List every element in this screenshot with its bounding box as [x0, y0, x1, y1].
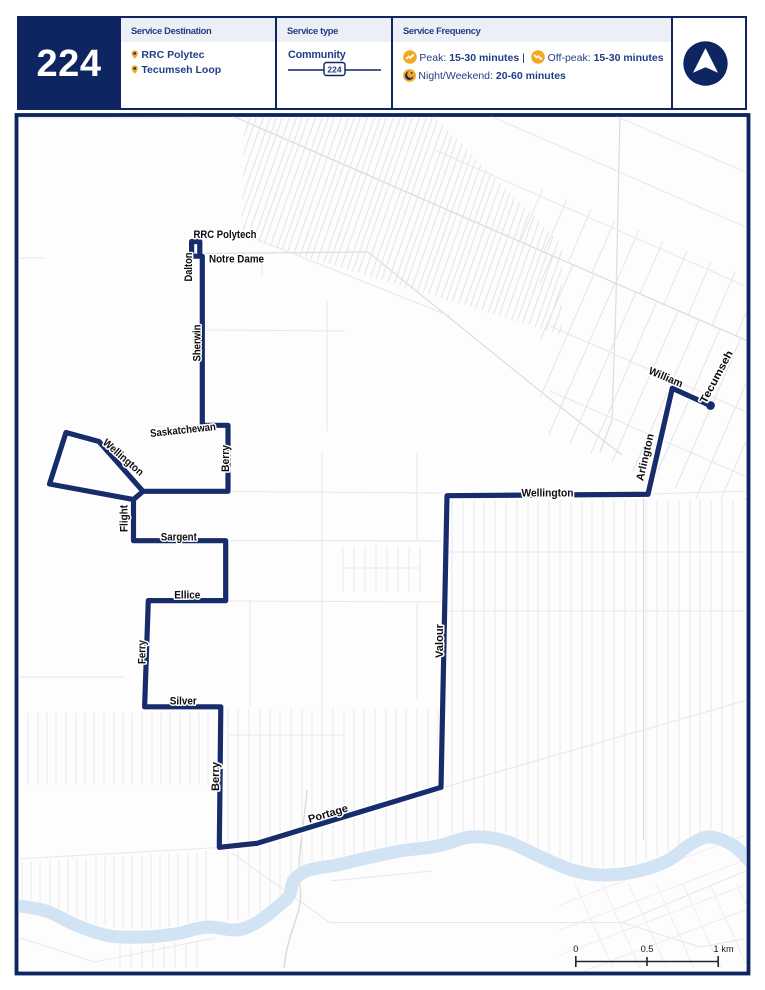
- svg-text:km: km: [721, 944, 734, 954]
- svg-text:Wellington: Wellington: [522, 488, 574, 500]
- svg-text:Berry: Berry: [220, 445, 232, 472]
- svg-text:Sherwin: Sherwin: [192, 325, 204, 362]
- svg-text:Dalton: Dalton: [183, 253, 195, 282]
- svg-text:Notre Dame: Notre Dame: [209, 253, 264, 265]
- svg-text:Ferry: Ferry: [136, 640, 148, 664]
- svg-text:Berry: Berry: [210, 762, 222, 791]
- svg-text:Ellice: Ellice: [174, 590, 200, 602]
- svg-text:Silver: Silver: [170, 696, 198, 708]
- svg-text:1: 1: [713, 944, 718, 954]
- svg-text:Valour: Valour: [434, 623, 446, 658]
- svg-text:RRC Polytech: RRC Polytech: [194, 229, 257, 241]
- svg-text:Sargent: Sargent: [161, 532, 197, 544]
- svg-text:0.5: 0.5: [641, 944, 654, 954]
- svg-text:Flight: Flight: [119, 505, 131, 532]
- svg-text:0: 0: [573, 944, 578, 954]
